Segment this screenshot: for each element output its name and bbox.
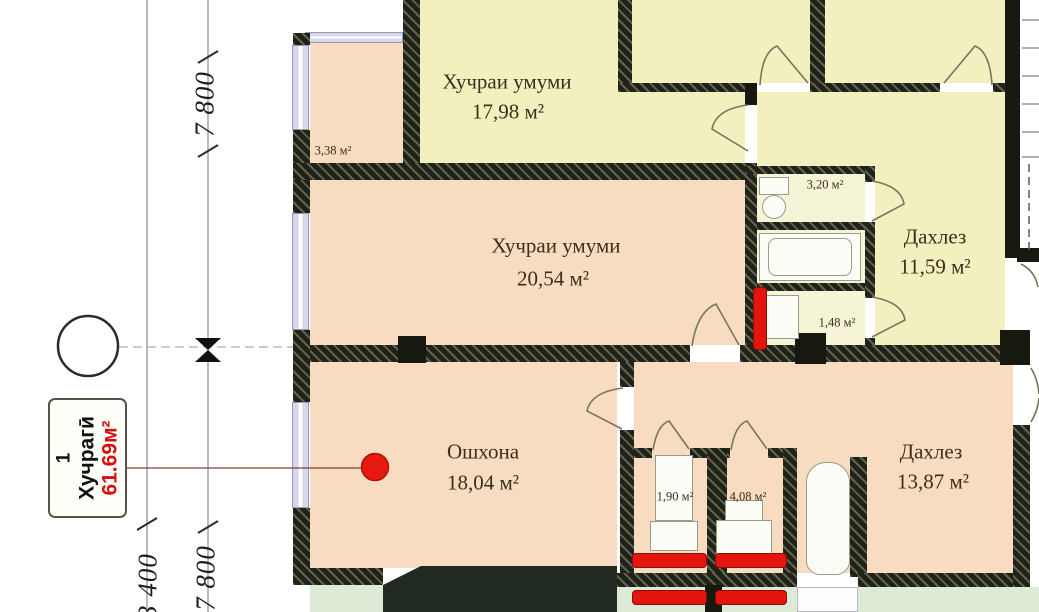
label-storage-area: 3,38 м² [315, 144, 352, 159]
door-bath-408 [731, 421, 767, 450]
floor-plan: Хучраи умуми 17,98 м² Хучраи умуми 20,54… [0, 0, 1039, 612]
label-kitchen-area: 18,04 м² [447, 471, 519, 496]
dimension-lower-right: 7 800 [191, 545, 222, 611]
door-wc-190 [653, 421, 689, 450]
unit-location-dot [362, 454, 389, 481]
grid-bubble-icon [58, 316, 118, 376]
dimension-lower-left: 3 400 [133, 553, 164, 612]
label-living-top-name: Хучраи умуми [443, 70, 572, 95]
label-living-mid-area: 20,54 м² [517, 267, 589, 292]
label-living-mid-name: Хучраи умуми [492, 234, 621, 259]
label-bath-320-area: 3,20 м² [807, 178, 844, 193]
label-hall-lower-area: 13,87 м² [897, 470, 969, 495]
door-hall-right-1 [1031, 368, 1039, 394]
staircase-icon [1022, 20, 1039, 157]
door-kitchen [587, 388, 623, 429]
dimension-upper: 7 800 [190, 71, 221, 137]
unit-label-content: 1 Хучрагӣ 61.69м² [54, 416, 121, 500]
section-marker-icon [195, 338, 221, 362]
door-living-mid [692, 304, 739, 346]
door-wc-148 [872, 297, 905, 337]
door-bath-320 [872, 181, 904, 221]
door-hall-right-2 [1031, 398, 1039, 422]
door-arcs [587, 46, 1039, 450]
unit-label-box: 1 Хучрагӣ 61.69м² [48, 398, 127, 518]
door-top-middle [760, 46, 808, 85]
label-hall-lower-name: Дахлез [900, 440, 963, 465]
unit-area: 61.69м² [98, 416, 121, 500]
label-wc-190-area: 1,90 м² [657, 490, 694, 505]
unit-type: Хучрагӣ [75, 416, 98, 500]
label-wc-148-area: 1,48 м² [819, 316, 856, 331]
label-living-top-area: 17,98 м² [472, 100, 544, 125]
label-hall-upper-area: 11,59 м² [899, 255, 970, 280]
door-landing [1021, 264, 1038, 287]
door-top-right [944, 46, 992, 85]
label-bath-408-area: 4,08 м² [730, 490, 767, 505]
label-kitchen-name: Ошхона [447, 440, 519, 465]
door-corridor [712, 105, 748, 151]
label-hall-upper-name: Дахлез [904, 225, 967, 250]
unit-number: 1 [54, 416, 75, 500]
